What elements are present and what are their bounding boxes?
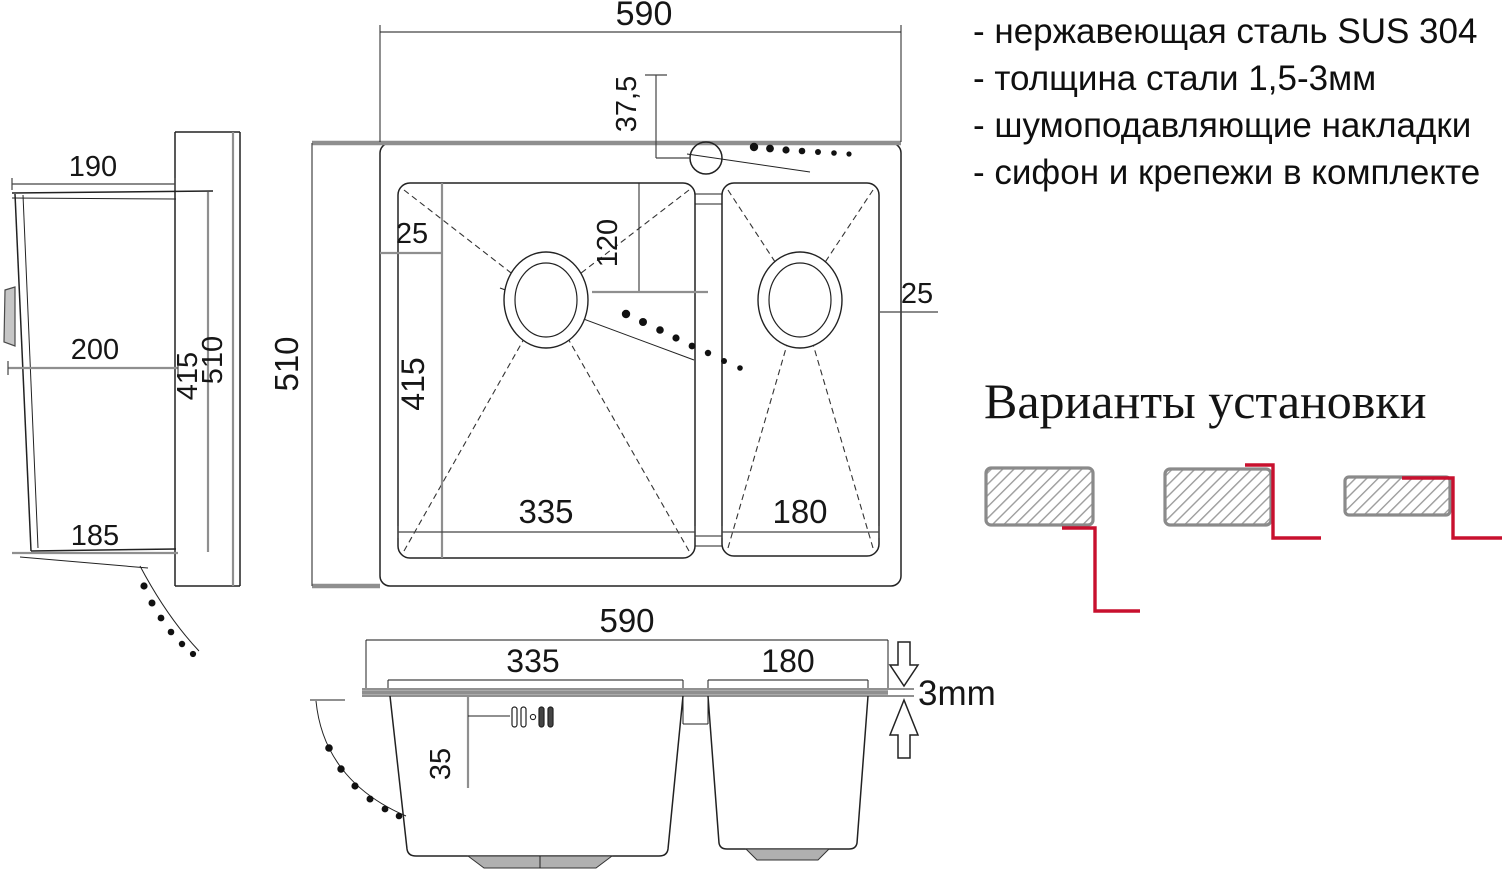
top-overall-width-label: 590: [616, 0, 673, 33]
top-overall-depth-label: 510: [268, 336, 305, 391]
front-overflow-offset-label: 35: [425, 748, 457, 780]
drain-hose-dots-icon: [310, 700, 406, 819]
side-bowl-depth-label: 200: [71, 334, 119, 366]
spec-item: - шумоподавляющие накладки: [973, 102, 1480, 149]
side-top-width-label: 190: [69, 151, 117, 183]
spec-item: - сифон и крепежи в комплекте: [973, 149, 1480, 196]
countertop-profile-icon: [1345, 477, 1502, 538]
installation-variants: [986, 465, 1502, 611]
drain-hose-dots-icon: [140, 566, 199, 657]
product-specs: - нержавеющая сталь SUS 304 - толщина ст…: [973, 8, 1480, 196]
top-half-bowl-width-label: 180: [772, 493, 827, 530]
countertop-profile-icon: [1165, 465, 1321, 538]
front-panel-thickness-label: 3mm: [918, 674, 996, 713]
top-faucet-offset-label: 37,5: [611, 76, 643, 132]
top-bowl-length-label: 415: [395, 357, 431, 410]
top-right-gap-label: 25: [901, 278, 933, 310]
overflow-slots-icon: [512, 707, 553, 727]
countertop-profile-icon: [986, 468, 1140, 611]
front-overall-width-label: 590: [599, 602, 654, 639]
top-drain-offset-label: 120: [592, 219, 624, 267]
thickness-arrow-icon: [890, 642, 918, 758]
side-view: 190 200 185 415 510: [4, 132, 240, 657]
side-bottom-width-label: 185: [71, 520, 119, 552]
side-overall-length-label: 510: [197, 336, 229, 384]
front-main-bowl-width-label: 335: [506, 643, 559, 679]
top-main-bowl-width-label: 335: [518, 493, 573, 530]
front-half-bowl-width-label: 180: [761, 643, 814, 679]
top-left-gap-label: 25: [396, 218, 428, 250]
drain-foot: [746, 849, 829, 860]
front-view: 590 335 180 3mm 35: [310, 602, 996, 868]
mounting-clip-icon: [4, 287, 15, 346]
spec-item: - нержавеющая сталь SUS 304: [973, 8, 1480, 55]
top-view: 590 510 37,5: [268, 0, 938, 586]
spec-item: - толщина стали 1,5-3мм: [973, 55, 1480, 102]
installation-title: Варианты установки: [984, 372, 1426, 430]
